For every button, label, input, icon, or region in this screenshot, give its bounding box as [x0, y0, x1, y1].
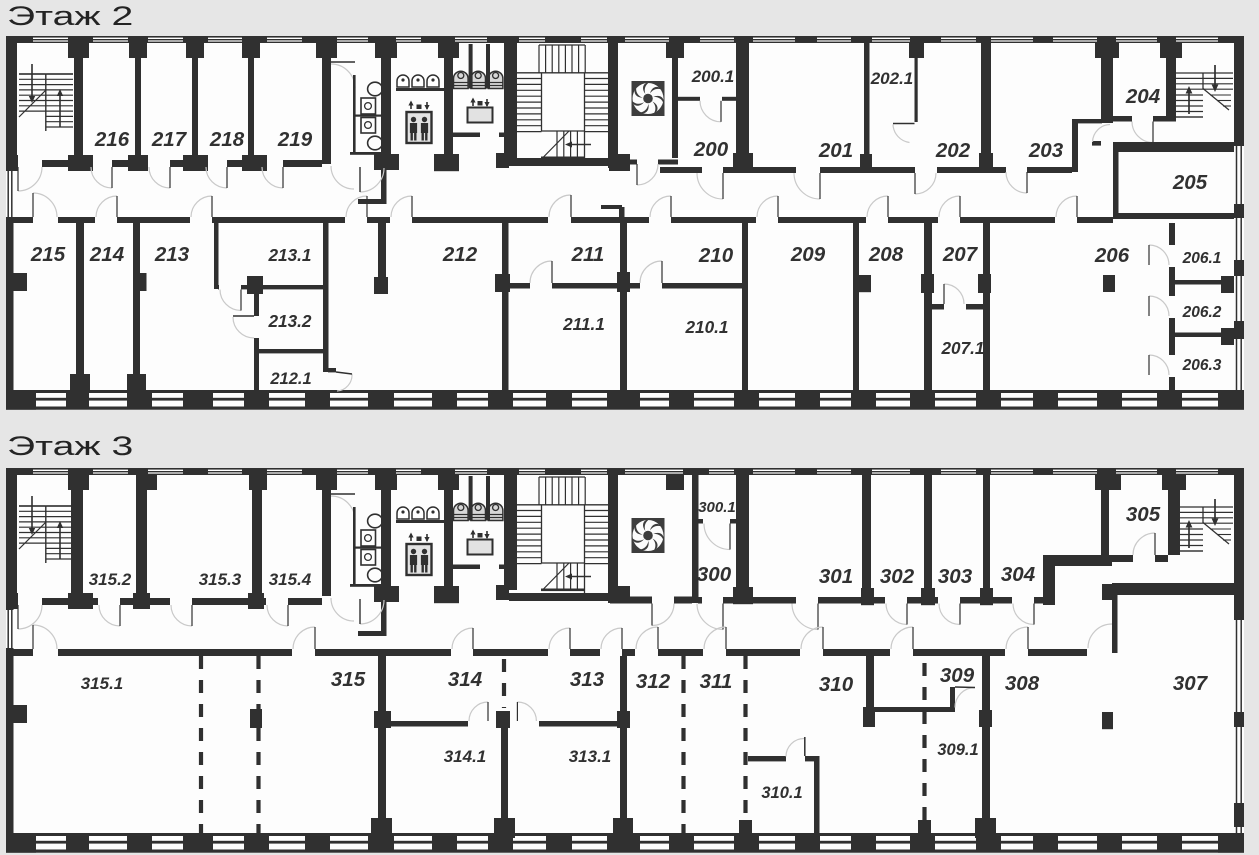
svg-text:315.4: 315.4 [269, 570, 312, 589]
svg-text:309: 309 [940, 664, 975, 687]
svg-text:313.1: 313.1 [569, 747, 612, 766]
svg-text:315.3: 315.3 [199, 570, 242, 589]
svg-text:313: 313 [570, 668, 605, 691]
svg-text:300.1: 300.1 [698, 499, 736, 516]
svg-text:305: 305 [1126, 503, 1161, 526]
svg-text:311: 311 [700, 670, 733, 693]
svg-text:312: 312 [636, 670, 671, 693]
svg-text:307: 307 [1173, 672, 1209, 695]
svg-text:310: 310 [819, 673, 854, 696]
svg-text:315.1: 315.1 [81, 674, 124, 693]
svg-text:315: 315 [331, 668, 366, 691]
svg-text:315.2: 315.2 [89, 570, 132, 589]
svg-text:314: 314 [448, 668, 483, 691]
svg-text:310.1: 310.1 [761, 784, 802, 802]
svg-text:309.1: 309.1 [937, 741, 978, 759]
svg-text:304: 304 [1001, 563, 1036, 586]
svg-text:314.1: 314.1 [444, 747, 487, 766]
svg-text:300: 300 [697, 563, 732, 586]
svg-text:302: 302 [880, 565, 915, 588]
svg-text:301: 301 [819, 565, 853, 588]
svg-text:308: 308 [1005, 672, 1040, 695]
svg-text:303: 303 [938, 565, 973, 588]
